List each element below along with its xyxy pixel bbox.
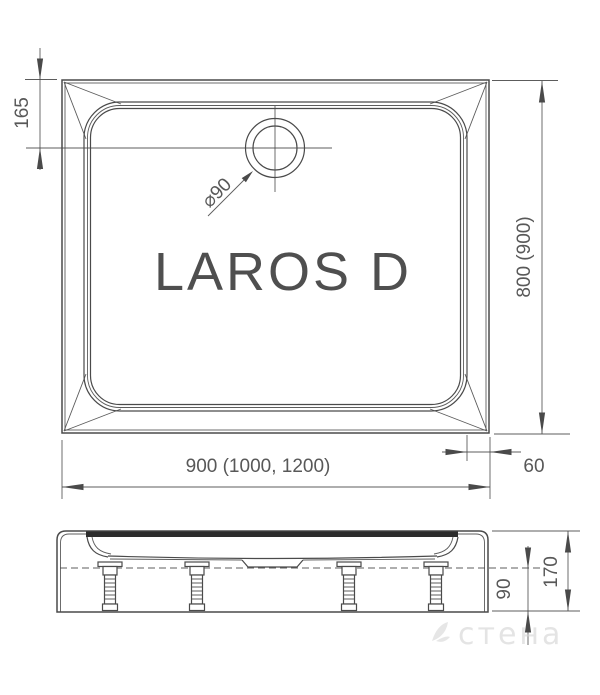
dim-skirt-height-label: 90 (494, 578, 515, 599)
dim-drain-offset-label: 165 (12, 97, 33, 129)
leg (424, 562, 448, 611)
leg (98, 562, 122, 611)
dim-depth: 800 (900) (492, 81, 570, 435)
dim-total-height-label: 170 (541, 556, 562, 588)
drain: ⌀90 (26, 106, 332, 216)
top-view: ⌀90 165 800 (900) 900 (1000, 1200) (12, 48, 570, 499)
basin-underside (87, 537, 458, 567)
dim-drain-offset: 165 (12, 48, 57, 170)
panel-outline (57, 531, 488, 612)
watermark-text: стена (458, 617, 563, 652)
drain-sump-profile (242, 560, 303, 567)
dim-rim: 60 (442, 435, 545, 477)
technical-drawing: ⌀90 165 800 (900) 900 (1000, 1200) (0, 0, 600, 695)
dim-depth-label: 800 (900) (514, 216, 535, 297)
leg (185, 562, 209, 611)
watermark-leaf-icon (432, 622, 450, 642)
dim-width-label: 900 (1000, 1200) (186, 456, 331, 477)
drain-diameter-label: ⌀90 (198, 174, 236, 212)
watermark: стена (432, 617, 563, 652)
product-name: LAROS D (154, 242, 412, 302)
leg (337, 562, 361, 611)
dim-width: 900 (1000, 1200) (62, 437, 490, 499)
dim-rim-label: 60 (523, 456, 544, 477)
adjustable-legs (98, 562, 448, 611)
tray-rim-edge (86, 532, 458, 538)
